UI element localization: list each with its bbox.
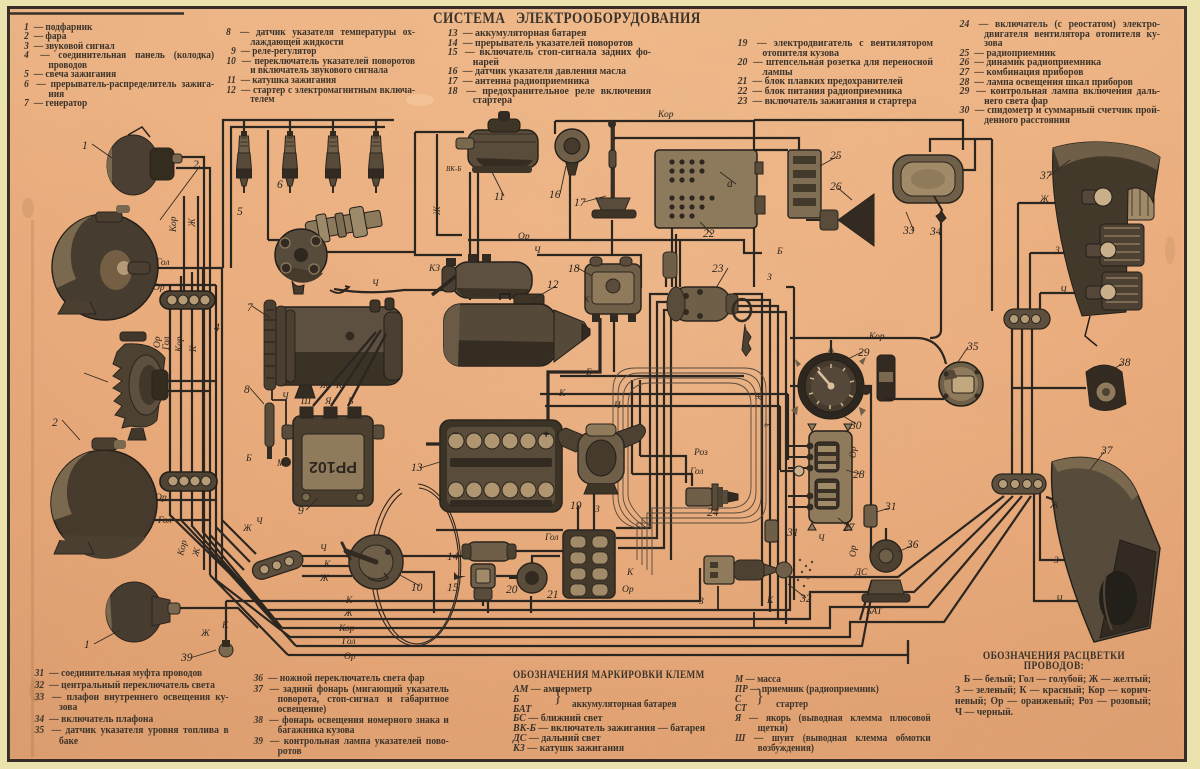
svg-text:35: 35 — [966, 341, 979, 353]
svg-text:22: 22 — [703, 228, 715, 240]
svg-text:Гол: Гол — [341, 637, 356, 647]
svg-text:З: З — [764, 423, 774, 428]
svg-text:Кор: Кор — [338, 624, 355, 634]
svg-text:4: 4 — [214, 322, 220, 334]
svg-text:К: К — [323, 560, 331, 570]
svg-text:6: 6 — [277, 179, 283, 191]
svg-text:a: a — [727, 178, 733, 190]
svg-text:Ж: Ж — [1049, 501, 1060, 511]
svg-text:PP102: PP102 — [309, 458, 357, 475]
svg-text:Ж: Ж — [433, 205, 443, 216]
svg-text:К: К — [335, 381, 343, 391]
svg-text:К: К — [345, 596, 353, 606]
svg-text:−: − — [452, 428, 458, 440]
svg-text:11: 11 — [494, 191, 505, 203]
svg-text:Ор: Ор — [849, 545, 859, 557]
svg-text:Ч: Ч — [818, 534, 825, 544]
svg-text:1: 1 — [82, 140, 88, 152]
svg-text:36: 36 — [906, 539, 919, 551]
svg-text:Ч: Ч — [372, 279, 379, 289]
svg-text:З: З — [699, 597, 704, 607]
svg-text:Кор: Кор — [657, 110, 674, 120]
svg-text:9: 9 — [298, 505, 304, 517]
svg-text:+: + — [543, 429, 549, 441]
svg-text:5: 5 — [237, 206, 243, 218]
svg-text:26: 26 — [830, 181, 842, 193]
svg-text:18: 18 — [568, 263, 580, 275]
svg-text:23: 23 — [712, 263, 724, 275]
svg-text:14: 14 — [447, 551, 459, 563]
svg-text:Кор: Кор — [868, 332, 885, 342]
svg-text:З: З — [1055, 246, 1060, 256]
svg-text:8: 8 — [244, 384, 250, 396]
svg-text:32: 32 — [799, 593, 812, 605]
svg-text:30: 30 — [849, 420, 862, 432]
svg-text:Кор: Кор — [169, 216, 179, 233]
svg-text:Ор: Ор — [344, 652, 356, 662]
svg-text:Б: Б — [347, 397, 354, 407]
svg-text:31: 31 — [884, 501, 897, 513]
svg-text:Б: Б — [776, 247, 783, 257]
svg-text:Ж: Ж — [343, 609, 354, 619]
svg-text:с: с — [631, 312, 635, 321]
svg-text:Ж: Ж — [242, 524, 253, 534]
svg-text:З: З — [595, 505, 600, 515]
svg-text:Б: Б — [245, 454, 252, 464]
svg-text:З: З — [767, 273, 772, 283]
svg-text:16: 16 — [549, 189, 561, 201]
svg-text:27: 27 — [843, 522, 856, 534]
svg-text:Гол: Гол — [155, 258, 170, 268]
svg-text:17: 17 — [574, 197, 587, 209]
svg-text:Гол: Гол — [544, 533, 559, 543]
svg-text:К: К — [558, 389, 566, 399]
svg-text:38: 38 — [1118, 357, 1131, 369]
svg-text:Ж: Ж — [319, 381, 330, 391]
svg-text:К: К — [189, 345, 199, 353]
svg-text:Ч: Ч — [614, 401, 621, 411]
svg-text:25: 25 — [830, 150, 842, 162]
svg-text:Ор: Ор — [622, 585, 634, 595]
svg-text:Ж: Ж — [1039, 195, 1050, 205]
svg-text:Ор: Ор — [518, 232, 530, 242]
svg-text:М: М — [276, 459, 286, 469]
svg-text:1: 1 — [84, 639, 90, 651]
svg-text:21: 21 — [547, 589, 559, 601]
svg-text:37: 37 — [1100, 445, 1114, 457]
svg-text:2: 2 — [193, 159, 199, 171]
svg-text:28: 28 — [853, 469, 865, 481]
svg-text:Ж: Ж — [755, 391, 765, 402]
svg-text:10: 10 — [411, 582, 423, 594]
svg-text:Ч: Ч — [282, 392, 289, 402]
svg-text:К: К — [766, 596, 774, 606]
svg-text:Ор: Ор — [849, 446, 859, 458]
svg-text:Ж: Ж — [319, 574, 330, 584]
svg-text:К: К — [626, 568, 634, 578]
svg-text:Гол: Гол — [162, 336, 172, 351]
svg-text:Роз: Роз — [693, 448, 708, 458]
svg-text:Ч: Ч — [320, 544, 327, 554]
svg-text:Ор: Ор — [153, 283, 165, 293]
svg-text:Гол: Гол — [689, 467, 704, 477]
svg-text:ДС: ДС — [854, 568, 868, 578]
svg-text:12: 12 — [547, 279, 559, 291]
svg-text:Гол: Гол — [157, 516, 172, 526]
svg-text:29: 29 — [858, 347, 870, 359]
svg-text:КЗ: КЗ — [428, 264, 440, 274]
svg-text:К: К — [583, 295, 590, 304]
svg-text:Ч: Ч — [256, 517, 263, 527]
svg-text:39: 39 — [180, 652, 193, 664]
svg-text:ч: ч — [611, 314, 615, 323]
svg-text:Ж: Ж — [188, 217, 198, 228]
svg-text:Ш: Ш — [300, 397, 312, 407]
svg-text:37: 37 — [1039, 170, 1053, 182]
svg-text:ВК-Б: ВК-Б — [446, 165, 461, 173]
svg-text:15: 15 — [447, 582, 459, 594]
svg-text:Кор: Кор — [175, 336, 185, 353]
svg-text:34: 34 — [929, 226, 942, 238]
svg-text:К: К — [221, 621, 229, 631]
svg-text:2: 2 — [52, 417, 58, 429]
svg-text:Ор: Ор — [155, 493, 167, 503]
svg-text:19: 19 — [570, 500, 582, 512]
svg-text:Ч: Ч — [1056, 595, 1063, 605]
svg-text:Ч: Ч — [534, 246, 541, 256]
svg-text:13: 13 — [411, 462, 423, 474]
svg-text:Я: Я — [324, 397, 332, 407]
svg-text:24: 24 — [707, 507, 719, 519]
svg-text:З: З — [1054, 556, 1059, 566]
svg-text:20: 20 — [506, 584, 518, 596]
svg-text:31: 31 — [786, 527, 799, 539]
svg-text:Б: Б — [585, 368, 592, 378]
svg-text:БАТ: БАТ — [865, 607, 883, 617]
svg-text:Ж: Ж — [200, 629, 211, 639]
svg-text:33: 33 — [902, 225, 915, 237]
svg-text:Ч: Ч — [1060, 286, 1067, 296]
